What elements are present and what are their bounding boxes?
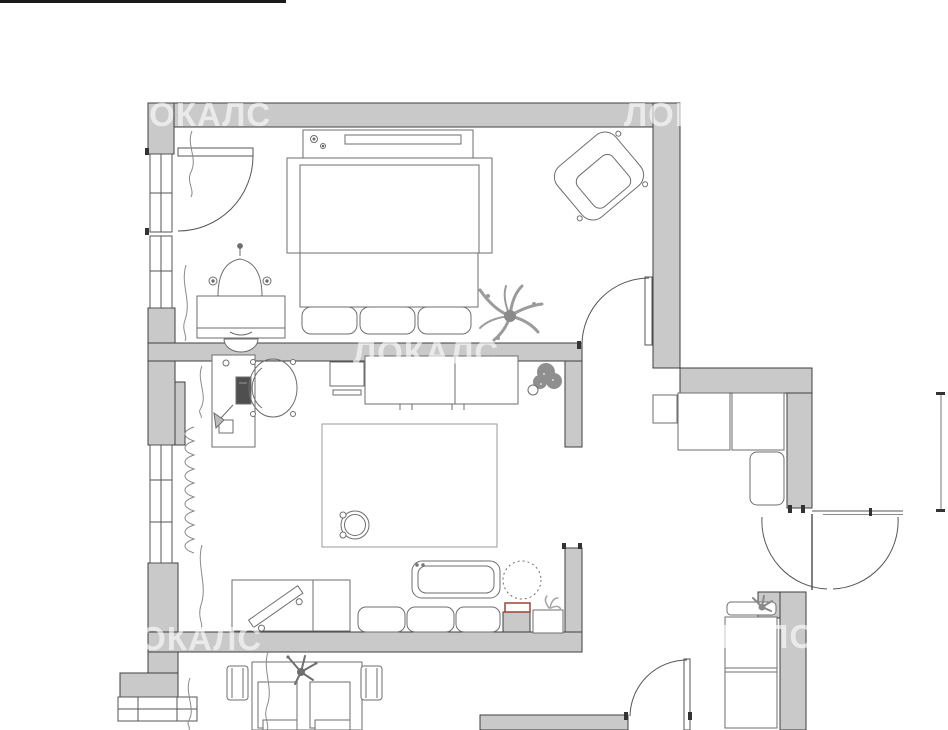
- floor-plan-drawing: ЛОКАЛС ЛОКАЛС ЛОКАЛС ЛОКАЛС ЛОКАЛС: [0, 0, 948, 730]
- curtain-squiggle-3: [200, 366, 204, 418]
- watermark-top-left: ЛОКАЛС: [125, 96, 271, 133]
- wardrobe-unit-1: [678, 393, 730, 450]
- vanity-mirror: [218, 259, 262, 296]
- coffee-table: [340, 511, 369, 539]
- wardrobe-unit-2: [732, 393, 784, 450]
- floor-plan-page: ЛОКАЛС ЛОКАЛС ЛОКАЛС ЛОКАЛС ЛОКАЛС: [0, 0, 948, 730]
- side-table: [533, 610, 563, 633]
- door-swing-arc: [762, 517, 827, 589]
- armchair: [544, 122, 658, 234]
- balcony-door-glass: [150, 154, 172, 232]
- shoe-cabinet: [653, 395, 677, 423]
- window-bedroom-left: [150, 236, 172, 308]
- wall-hallway-top: [680, 368, 812, 393]
- radiator-coil: [185, 427, 194, 553]
- mini-plant-side-table: [545, 596, 561, 610]
- wall-left-living: [148, 361, 175, 445]
- rounded-cabinet: [750, 452, 784, 505]
- corridor-right-line: [936, 392, 945, 512]
- hallway-furniture: [653, 393, 784, 728]
- bedroom-bench-sofa: [300, 253, 478, 334]
- watermark-bottom-left: ЛОКАЛС: [116, 620, 262, 657]
- red-tray: [505, 603, 530, 612]
- door-swing-arc: [833, 517, 898, 589]
- entry-double-door: [762, 511, 903, 590]
- door-swing-arc: [582, 278, 649, 345]
- window-living-left: [150, 445, 172, 563]
- desk-chair: [249, 359, 297, 417]
- double-bed: [287, 158, 492, 253]
- dining-chair-right: [361, 666, 382, 700]
- desk: [212, 355, 255, 447]
- wall-stub-upper: [565, 361, 582, 447]
- bedroom-balcony-door: [178, 148, 253, 231]
- watermark-center: ЛОКАЛС: [353, 334, 499, 371]
- dressing-table: [197, 244, 285, 352]
- dining-chair-left: [227, 666, 248, 700]
- wall-step-2: [120, 673, 178, 697]
- palm-plant-bedroom: [480, 286, 542, 340]
- curtain-squiggle-4: [200, 545, 204, 629]
- curtain-squiggle-1: [189, 131, 193, 197]
- dining-chair-bottom-1: [263, 720, 297, 730]
- wall-bath-right: [780, 592, 806, 730]
- door-swing-arc: [178, 156, 253, 231]
- kitchen-door: [630, 659, 690, 730]
- dining-chair-bottom-2: [315, 720, 350, 730]
- window-kitchen-bottom: [118, 697, 197, 721]
- bedroom-entry-door: [582, 277, 652, 345]
- bedroom-furniture: [197, 122, 658, 352]
- headboard-shelf: [303, 130, 473, 158]
- wall-kitchen-bottom: [480, 715, 628, 730]
- chaise-sofa: [358, 561, 500, 632]
- wall-bedroom-right: [653, 103, 680, 368]
- potted-plant-living: [528, 363, 562, 395]
- curtain-squiggle-2: [184, 265, 188, 341]
- door-swing-arc: [630, 660, 687, 716]
- living-furniture: [212, 355, 563, 634]
- wall-left-step: [175, 382, 185, 445]
- watermark-top-right: ЛОКАЛС: [624, 96, 770, 133]
- watermark-bottom-right: ЛОКАЛС: [668, 618, 814, 655]
- wall-hallway-right: [787, 393, 812, 508]
- pouf: [503, 561, 541, 599]
- top-edge-line: [0, 0, 286, 3]
